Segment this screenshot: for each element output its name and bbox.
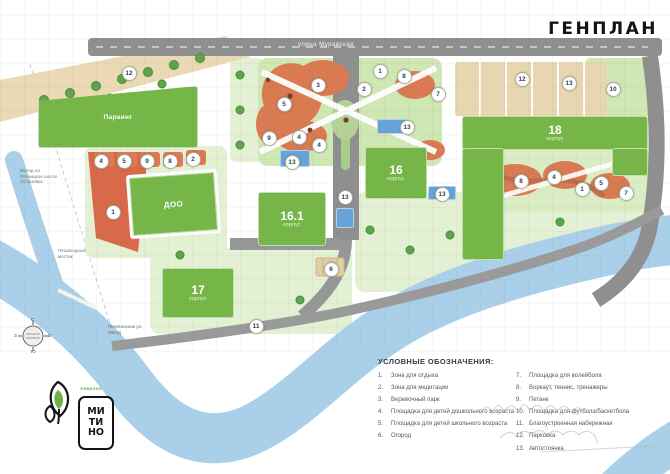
building-16-1-sub: корпус [283, 222, 300, 228]
building-18-wing-right [612, 148, 648, 176]
legend-item-number: 9. [516, 397, 529, 405]
map-marker-1: 1 [373, 64, 388, 79]
project-name-line3: НО [88, 428, 104, 438]
legend-item-number: 1. [378, 373, 391, 381]
legend-item-10: 10.Площадка для футбола/баскетбола [516, 409, 666, 417]
legend-item-13: 13.Автостоянка [516, 446, 666, 454]
exit-label: Выезд на Пятницкое шоссе Остановка [20, 168, 57, 185]
legend-item-11: 11.Благоустроенная набережная [516, 421, 666, 429]
legend-item-number: 10. [516, 409, 529, 417]
map-marker-5: 5 [117, 154, 132, 169]
leaf-icon [36, 376, 80, 428]
legend-item-text: Автостоянка [529, 446, 564, 454]
exit-label-line3: Остановка [20, 179, 57, 185]
building-16-1: 16.1 корпус [258, 192, 326, 246]
building-17-number: 17 [191, 284, 204, 297]
legend-item-number: 5. [378, 421, 391, 429]
legend-item-12: 12.Парковка [516, 433, 666, 441]
legend-item-text: Воркаут, теннис, тренажеры [529, 385, 608, 393]
legend-item-text: Площадка для детей школьного возраста [391, 421, 507, 429]
map-marker-7: 7 [619, 186, 634, 201]
building-18-wing-left [462, 148, 504, 260]
building-17: 17 корпус [162, 268, 234, 318]
legend-title: УСЛОВНЫЕ ОБОЗНАЧЕНИЯ: [378, 357, 666, 366]
map-marker-13: 13 [435, 187, 450, 202]
map-marker-11: 11 [249, 319, 264, 334]
legend-item-number: 2. [378, 385, 391, 393]
map-marker-13: 13 [562, 76, 577, 91]
road-label-line2: МКАД [108, 330, 143, 336]
legend-column-1: 1.Зона для отдыха2.Зона для медитации3.В… [378, 373, 516, 453]
road-label: Пенягинская ул. МКАД [108, 324, 143, 335]
legend-item-text: Площадка для футбола/баскетбола [529, 409, 629, 417]
bridge-label: Пешеходный мостик [58, 248, 86, 259]
building-16-1-number: 16.1 [280, 210, 303, 223]
map-marker-8: 8 [397, 69, 412, 84]
map-marker-9: 9 [140, 154, 155, 169]
map-marker-12: 12 [122, 66, 137, 81]
map-marker-9: 9 [262, 131, 277, 146]
legend-column-2: 7.Площадка для волейбола8.Воркаут, тенни… [516, 373, 666, 453]
map-marker-13: 13 [285, 155, 300, 170]
map-marker-13: 13 [338, 190, 353, 205]
building-16-sub: корпус [387, 176, 404, 182]
building-16-number: 16 [389, 164, 402, 177]
compass-south: Ю [31, 349, 36, 355]
legend-item-number: 3. [378, 397, 391, 405]
legend-item-number: 4. [378, 409, 391, 417]
map-marker-3: 3 [311, 78, 326, 93]
map-marker-2: 2 [186, 152, 201, 167]
legend-item-6: 6.Огород [378, 433, 516, 441]
legend-item-5: 5.Площадка для детей школьного возраста [378, 421, 516, 429]
legend: УСЛОВНЫЕ ОБОЗНАЧЕНИЯ: 1.Зона для отдыха2… [378, 357, 666, 453]
map-marker-2: 2 [357, 82, 372, 97]
legend-item-2: 2.Зона для медитации [378, 385, 516, 393]
legend-item-text: Благоустроенная набережная [529, 421, 612, 429]
map-marker-4: 4 [312, 138, 327, 153]
map-marker-7: 7 [431, 87, 446, 102]
map-marker-10: 10 [606, 82, 621, 97]
building-17-sub: корпус [189, 296, 206, 302]
legend-item-text: Парковка [529, 433, 555, 441]
project-name: МИ ТИ НО [78, 396, 114, 450]
map-marker-8: 8 [514, 174, 529, 189]
building-18-sub: корпус [546, 136, 563, 142]
building-18: 18 корпус [462, 116, 648, 150]
legend-item-8: 8.Воркаут, теннис, тренажеры [516, 385, 666, 393]
compass-west: З [14, 333, 17, 339]
map-marker-12: 12 [515, 72, 530, 87]
building-18-number: 18 [548, 124, 561, 137]
compass-east: В [48, 333, 51, 339]
legend-item-text: Огород [391, 433, 411, 441]
legend-item-3: 3.Веревочный парк [378, 397, 516, 405]
legend-item-number: 12. [516, 433, 529, 441]
legend-item-number: 6. [378, 433, 391, 441]
legend-item-text: Зона для медитации [391, 385, 449, 393]
legend-item-number: 11. [516, 421, 529, 429]
map-marker-1: 1 [106, 205, 121, 220]
map-marker-8: 8 [163, 154, 178, 169]
map-marker-4: 4 [547, 170, 562, 185]
brand-name: Аквилон [80, 386, 102, 391]
legend-item-4: 4.Площадка для детей дошкольного возраст… [378, 409, 516, 417]
legend-item-text: Площадка для волейбола [529, 373, 602, 381]
bridge-label-line2: мостик [58, 254, 86, 260]
legend-item-number: 7. [516, 373, 529, 381]
map-marker-1: 1 [575, 182, 590, 197]
legend-item-7: 7.Площадка для волейбола [516, 373, 666, 381]
bridge-label-line1: Пешеходный [58, 248, 86, 254]
legend-item-text: Зона для отдыха [391, 373, 438, 381]
building-kindergarten-label: ДОО [164, 199, 184, 209]
map-marker-5: 5 [594, 176, 609, 191]
legend-item-text: Петанк [529, 397, 548, 405]
legend-item-9: 9.Петанк [516, 397, 666, 405]
building-kindergarten: ДОО [126, 169, 221, 239]
legend-item-text: Веревочный парк [391, 397, 440, 405]
legend-item-1: 1.Зона для отдыха [378, 373, 516, 381]
building-parking-label: Паркинг [104, 114, 133, 121]
page-title: ГЕНПЛАН [548, 19, 658, 39]
map-marker-4: 4 [292, 130, 307, 145]
building-16: 16 корпус [365, 147, 427, 199]
map-marker-13: 13 [400, 120, 415, 135]
compass-north: С [31, 317, 34, 323]
map-marker-4: 4 [94, 154, 109, 169]
map-marker-5: 5 [277, 97, 292, 112]
legend-item-number: 13. [516, 446, 529, 454]
legend-item-text: Площадка для детей дошкольного возраста [391, 409, 514, 417]
map-marker-6: 6 [324, 262, 339, 277]
blue-building [336, 208, 354, 228]
brand-logo: Аквилон МИ ТИ НО [36, 374, 126, 466]
legend-item-number: 8. [516, 385, 529, 393]
parking-structure [455, 62, 607, 116]
road-label-line1: Пенягинская ул. [108, 324, 143, 330]
street-name-label: улица Муравская [298, 42, 354, 48]
